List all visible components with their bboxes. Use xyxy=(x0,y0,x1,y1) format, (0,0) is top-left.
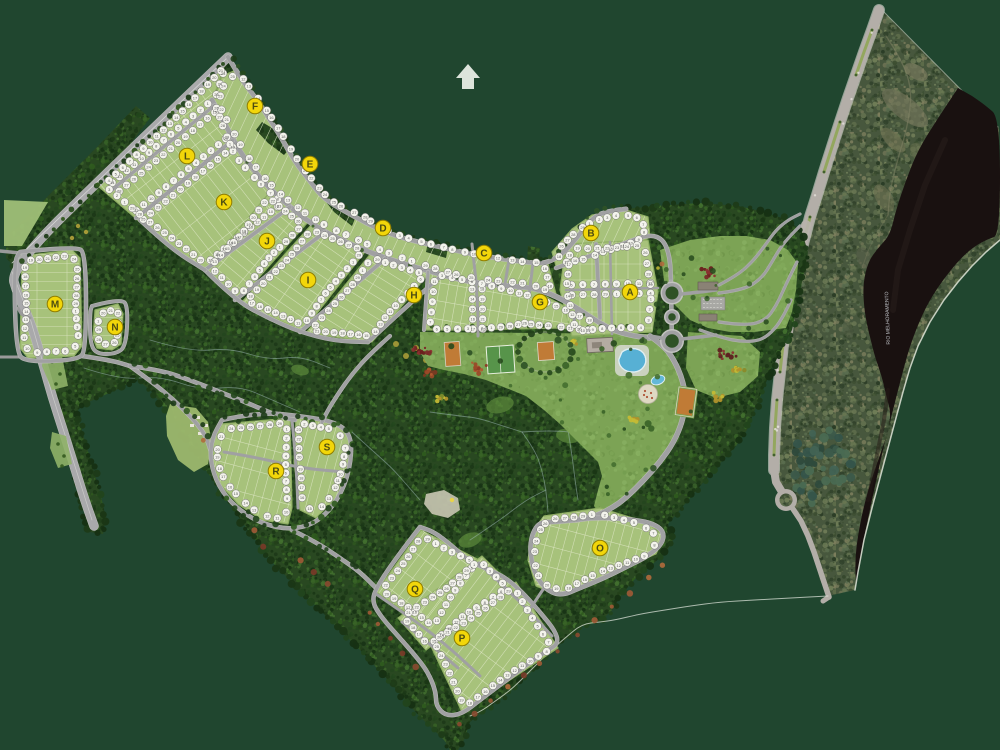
svg-text:28: 28 xyxy=(268,422,273,427)
svg-text:25: 25 xyxy=(290,213,295,218)
svg-text:29: 29 xyxy=(423,263,428,268)
svg-text:24: 24 xyxy=(283,209,288,214)
svg-text:22: 22 xyxy=(54,255,59,260)
svg-text:13: 13 xyxy=(281,313,286,318)
svg-text:23: 23 xyxy=(154,158,159,163)
svg-text:29: 29 xyxy=(130,206,135,211)
svg-text:13: 13 xyxy=(252,507,257,512)
svg-text:26: 26 xyxy=(553,516,558,521)
svg-text:21: 21 xyxy=(520,281,525,286)
svg-text:23: 23 xyxy=(546,323,551,328)
svg-text:J: J xyxy=(264,236,270,247)
svg-text:14: 14 xyxy=(110,180,115,185)
svg-text:23: 23 xyxy=(320,315,325,320)
svg-text:27: 27 xyxy=(446,270,451,275)
svg-text:18: 18 xyxy=(191,128,196,133)
svg-text:26: 26 xyxy=(454,272,459,277)
svg-text:29: 29 xyxy=(499,324,504,329)
svg-text:29: 29 xyxy=(648,282,653,287)
svg-text:25: 25 xyxy=(230,74,235,79)
svg-text:20: 20 xyxy=(198,258,203,263)
svg-text:20: 20 xyxy=(534,284,539,289)
svg-text:21: 21 xyxy=(219,434,224,439)
svg-text:10: 10 xyxy=(581,328,586,333)
svg-text:17: 17 xyxy=(545,275,550,280)
svg-text:20: 20 xyxy=(232,131,237,136)
svg-text:19: 19 xyxy=(289,147,294,152)
svg-text:18: 18 xyxy=(411,625,416,630)
svg-text:27: 27 xyxy=(74,285,79,290)
svg-text:22: 22 xyxy=(219,107,224,112)
svg-text:20: 20 xyxy=(178,187,183,192)
svg-text:28: 28 xyxy=(96,337,101,342)
svg-text:24: 24 xyxy=(439,653,444,658)
svg-text:27: 27 xyxy=(346,242,351,247)
svg-text:12: 12 xyxy=(241,76,246,81)
svg-text:10: 10 xyxy=(338,471,343,476)
svg-text:15: 15 xyxy=(491,683,496,688)
svg-text:14: 14 xyxy=(520,259,525,264)
svg-text:12: 12 xyxy=(616,563,621,568)
svg-text:16: 16 xyxy=(228,484,233,489)
svg-text:24: 24 xyxy=(148,211,153,216)
svg-text:23: 23 xyxy=(423,599,428,604)
svg-text:21: 21 xyxy=(480,316,485,321)
svg-text:28: 28 xyxy=(571,232,576,237)
svg-text:19: 19 xyxy=(332,330,337,335)
svg-text:R: R xyxy=(272,466,280,477)
svg-text:13: 13 xyxy=(510,258,515,263)
svg-text:21: 21 xyxy=(297,446,302,451)
svg-text:25: 25 xyxy=(332,200,337,205)
svg-text:N: N xyxy=(111,322,118,333)
svg-text:Q: Q xyxy=(411,584,419,595)
svg-text:10: 10 xyxy=(139,156,144,161)
svg-text:25: 25 xyxy=(333,301,338,306)
svg-text:20: 20 xyxy=(295,156,300,161)
svg-text:20: 20 xyxy=(251,215,256,220)
svg-text:26: 26 xyxy=(339,204,344,209)
svg-text:17: 17 xyxy=(575,581,580,586)
svg-text:25: 25 xyxy=(529,321,534,326)
svg-text:27: 27 xyxy=(516,322,521,327)
svg-text:10: 10 xyxy=(448,595,453,600)
svg-text:26: 26 xyxy=(444,586,449,591)
svg-text:15: 15 xyxy=(266,307,271,312)
svg-text:14: 14 xyxy=(279,192,284,197)
svg-text:29: 29 xyxy=(581,513,586,518)
svg-text:19: 19 xyxy=(183,134,188,139)
svg-text:25: 25 xyxy=(434,644,439,649)
svg-text:15: 15 xyxy=(419,615,424,620)
svg-text:28: 28 xyxy=(592,292,597,297)
svg-text:23: 23 xyxy=(277,204,282,209)
svg-text:18: 18 xyxy=(247,156,252,161)
svg-text:20: 20 xyxy=(212,75,217,80)
svg-text:17: 17 xyxy=(417,632,422,637)
svg-text:27: 27 xyxy=(581,292,586,297)
svg-text:29: 29 xyxy=(96,327,101,332)
svg-text:23: 23 xyxy=(279,263,284,268)
svg-text:26: 26 xyxy=(569,292,574,297)
svg-text:23: 23 xyxy=(532,549,537,554)
svg-text:20: 20 xyxy=(455,688,460,693)
svg-text:19: 19 xyxy=(29,258,34,263)
svg-text:17: 17 xyxy=(193,95,198,100)
svg-text:17: 17 xyxy=(198,122,203,127)
svg-text:21: 21 xyxy=(45,256,50,261)
svg-text:18: 18 xyxy=(480,286,485,291)
svg-text:D: D xyxy=(379,223,386,234)
svg-text:16: 16 xyxy=(300,495,305,500)
svg-text:27: 27 xyxy=(300,239,305,244)
svg-text:27: 27 xyxy=(296,226,301,231)
svg-text:16: 16 xyxy=(269,115,274,120)
svg-text:13: 13 xyxy=(505,673,510,678)
svg-text:13: 13 xyxy=(327,496,332,501)
svg-text:21: 21 xyxy=(108,308,113,313)
svg-text:25: 25 xyxy=(239,425,244,430)
svg-text:24: 24 xyxy=(625,244,630,249)
svg-text:27: 27 xyxy=(352,210,357,215)
svg-text:14: 14 xyxy=(24,309,29,314)
svg-text:16: 16 xyxy=(483,689,488,694)
svg-text:18: 18 xyxy=(242,229,247,234)
svg-text:19: 19 xyxy=(543,287,548,292)
svg-text:23: 23 xyxy=(218,93,223,98)
svg-text:15: 15 xyxy=(307,506,312,511)
svg-text:29: 29 xyxy=(73,301,78,306)
svg-text:27: 27 xyxy=(563,515,568,520)
svg-text:23: 23 xyxy=(317,185,322,190)
svg-text:22: 22 xyxy=(116,311,121,316)
svg-text:19: 19 xyxy=(206,82,211,87)
svg-text:24: 24 xyxy=(322,233,327,238)
svg-text:I: I xyxy=(307,275,310,286)
svg-text:25: 25 xyxy=(635,243,640,248)
svg-text:10: 10 xyxy=(25,346,30,351)
svg-text:28: 28 xyxy=(137,212,142,217)
svg-text:17: 17 xyxy=(348,331,353,336)
svg-text:10: 10 xyxy=(305,318,310,323)
svg-text:24: 24 xyxy=(285,258,290,263)
svg-text:21: 21 xyxy=(171,193,176,198)
svg-text:12: 12 xyxy=(161,127,166,132)
svg-text:15: 15 xyxy=(364,333,369,338)
svg-text:18: 18 xyxy=(340,331,345,336)
svg-text:10: 10 xyxy=(628,241,633,246)
svg-text:18: 18 xyxy=(468,700,473,705)
svg-text:13: 13 xyxy=(435,618,440,623)
svg-text:14: 14 xyxy=(498,678,503,683)
svg-text:23: 23 xyxy=(443,662,448,667)
svg-text:13: 13 xyxy=(246,84,251,89)
svg-text:10: 10 xyxy=(528,659,533,664)
svg-text:27: 27 xyxy=(491,600,496,605)
svg-text:18: 18 xyxy=(23,274,28,279)
svg-text:28: 28 xyxy=(220,123,225,128)
svg-text:18: 18 xyxy=(548,283,553,288)
svg-text:24: 24 xyxy=(430,595,435,600)
svg-text:19: 19 xyxy=(480,296,485,301)
svg-text:25: 25 xyxy=(139,170,144,175)
svg-text:15: 15 xyxy=(565,281,570,286)
svg-text:M: M xyxy=(51,299,59,310)
svg-text:16: 16 xyxy=(258,304,263,309)
svg-text:13: 13 xyxy=(117,174,122,179)
svg-text:12: 12 xyxy=(383,315,388,320)
svg-text:14: 14 xyxy=(320,504,325,509)
svg-text:K: K xyxy=(220,197,228,208)
svg-text:17: 17 xyxy=(237,234,242,239)
svg-text:28: 28 xyxy=(457,574,462,579)
svg-text:24: 24 xyxy=(170,236,175,241)
svg-text:21: 21 xyxy=(267,275,272,280)
svg-text:27: 27 xyxy=(258,423,263,428)
svg-text:26: 26 xyxy=(155,225,160,230)
svg-text:P: P xyxy=(459,633,466,644)
svg-text:23: 23 xyxy=(315,229,320,234)
svg-text:H: H xyxy=(410,290,417,301)
svg-text:15: 15 xyxy=(225,246,230,251)
svg-text:22: 22 xyxy=(559,324,564,329)
svg-text:12: 12 xyxy=(255,219,260,224)
svg-text:15: 15 xyxy=(590,573,595,578)
svg-text:26: 26 xyxy=(339,294,344,299)
svg-text:16: 16 xyxy=(231,240,236,245)
svg-text:28: 28 xyxy=(355,246,360,251)
svg-text:14: 14 xyxy=(593,253,598,258)
svg-text:17: 17 xyxy=(276,126,281,131)
svg-text:15: 15 xyxy=(234,491,239,496)
svg-text:19: 19 xyxy=(255,287,260,292)
svg-text:18: 18 xyxy=(399,600,404,605)
svg-text:F: F xyxy=(252,101,258,112)
svg-text:22: 22 xyxy=(163,199,168,204)
svg-text:29: 29 xyxy=(357,253,362,258)
svg-text:23: 23 xyxy=(62,254,67,259)
svg-text:25: 25 xyxy=(290,252,295,257)
svg-text:25: 25 xyxy=(162,230,167,235)
svg-text:22: 22 xyxy=(273,269,278,274)
svg-text:13: 13 xyxy=(168,121,173,126)
svg-text:17: 17 xyxy=(299,485,304,490)
svg-text:20: 20 xyxy=(261,281,266,286)
svg-text:10: 10 xyxy=(393,303,398,308)
svg-text:27: 27 xyxy=(217,114,222,119)
svg-text:14: 14 xyxy=(470,297,475,302)
svg-text:13: 13 xyxy=(568,303,573,308)
svg-text:18: 18 xyxy=(248,294,253,299)
svg-text:19: 19 xyxy=(392,596,397,601)
svg-text:17: 17 xyxy=(201,169,206,174)
svg-text:19: 19 xyxy=(186,181,191,186)
svg-text:16: 16 xyxy=(208,163,213,168)
svg-text:20: 20 xyxy=(323,329,328,334)
svg-text:14: 14 xyxy=(373,329,378,334)
svg-text:14: 14 xyxy=(426,620,431,625)
svg-text:16: 16 xyxy=(470,317,475,322)
svg-text:16: 16 xyxy=(413,610,418,615)
svg-text:21: 21 xyxy=(315,329,320,334)
svg-text:19: 19 xyxy=(575,246,580,251)
svg-text:10: 10 xyxy=(226,282,231,287)
svg-text:15: 15 xyxy=(581,257,586,262)
svg-text:27: 27 xyxy=(124,183,129,188)
svg-text:16: 16 xyxy=(566,272,571,277)
svg-text:28: 28 xyxy=(305,232,310,237)
svg-text:24: 24 xyxy=(326,308,331,313)
svg-text:20: 20 xyxy=(101,310,106,315)
svg-text:29: 29 xyxy=(425,536,430,541)
svg-text:21: 21 xyxy=(406,610,411,615)
svg-text:17: 17 xyxy=(254,165,259,170)
svg-text:20: 20 xyxy=(297,455,302,460)
svg-text:13: 13 xyxy=(286,198,291,203)
svg-text:19: 19 xyxy=(298,467,303,472)
svg-text:24: 24 xyxy=(229,426,234,431)
svg-text:18: 18 xyxy=(587,318,592,323)
svg-text:23: 23 xyxy=(296,427,301,432)
svg-text:23: 23 xyxy=(496,278,501,283)
svg-text:27: 27 xyxy=(450,580,455,585)
svg-text:16: 16 xyxy=(573,258,578,263)
svg-text:20: 20 xyxy=(37,257,42,262)
svg-text:24: 24 xyxy=(486,277,491,282)
svg-text:24: 24 xyxy=(469,616,474,621)
svg-text:28: 28 xyxy=(74,293,79,298)
svg-text:28: 28 xyxy=(433,266,438,271)
svg-text:14: 14 xyxy=(243,501,248,506)
svg-text:28: 28 xyxy=(290,233,295,238)
svg-text:E: E xyxy=(307,159,314,170)
svg-text:18: 18 xyxy=(566,586,571,591)
svg-text:10: 10 xyxy=(269,209,274,214)
svg-text:19: 19 xyxy=(459,698,464,703)
svg-text:15: 15 xyxy=(269,183,274,188)
svg-text:29: 29 xyxy=(225,134,230,139)
svg-text:29: 29 xyxy=(464,568,469,573)
svg-text:18: 18 xyxy=(299,475,304,480)
svg-text:27: 27 xyxy=(645,261,650,266)
svg-text:28: 28 xyxy=(572,515,577,520)
svg-text:23: 23 xyxy=(615,245,620,250)
svg-text:22: 22 xyxy=(271,198,276,203)
svg-text:15: 15 xyxy=(432,639,437,644)
svg-text:10: 10 xyxy=(313,217,318,222)
svg-text:13: 13 xyxy=(470,287,475,292)
svg-text:18: 18 xyxy=(199,89,204,94)
svg-text:19: 19 xyxy=(238,142,243,147)
svg-text:14: 14 xyxy=(219,252,224,257)
svg-text:17: 17 xyxy=(577,314,582,319)
svg-text:26: 26 xyxy=(295,245,300,250)
svg-text:24: 24 xyxy=(146,164,151,169)
svg-text:24: 24 xyxy=(395,568,400,573)
svg-text:10: 10 xyxy=(148,140,153,145)
svg-text:22: 22 xyxy=(383,583,388,588)
svg-text:12: 12 xyxy=(570,312,575,317)
svg-text:15: 15 xyxy=(470,307,475,312)
svg-text:14: 14 xyxy=(174,115,179,120)
svg-text:13: 13 xyxy=(608,566,613,571)
svg-text:15: 15 xyxy=(24,301,29,306)
svg-text:19: 19 xyxy=(246,222,251,227)
svg-text:10: 10 xyxy=(467,610,472,615)
svg-text:29: 29 xyxy=(603,292,608,297)
svg-text:27: 27 xyxy=(565,238,570,243)
svg-text:22: 22 xyxy=(296,437,301,442)
svg-text:25: 25 xyxy=(401,561,406,566)
svg-text:20: 20 xyxy=(585,246,590,251)
svg-text:20: 20 xyxy=(480,306,485,311)
svg-text:15: 15 xyxy=(180,108,185,113)
svg-text:12: 12 xyxy=(23,326,28,331)
svg-text:16: 16 xyxy=(263,176,268,181)
svg-text:29: 29 xyxy=(284,239,289,244)
svg-text:28: 28 xyxy=(350,282,355,287)
svg-text:19: 19 xyxy=(23,265,28,270)
svg-text:24: 24 xyxy=(72,257,77,262)
svg-text:16: 16 xyxy=(24,292,29,297)
svg-text:26: 26 xyxy=(522,321,527,326)
svg-text:L: L xyxy=(184,151,190,162)
svg-text:16: 16 xyxy=(356,332,361,337)
svg-text:12: 12 xyxy=(288,317,293,322)
svg-text:12: 12 xyxy=(496,256,501,261)
svg-text:20: 20 xyxy=(437,634,442,639)
svg-text:29: 29 xyxy=(278,421,283,426)
svg-text:25: 25 xyxy=(476,611,481,616)
svg-text:18: 18 xyxy=(557,254,562,259)
svg-text:19: 19 xyxy=(405,619,410,624)
svg-text:22: 22 xyxy=(309,176,314,181)
svg-text:12: 12 xyxy=(296,205,301,210)
svg-text:28: 28 xyxy=(416,539,421,544)
svg-text:12: 12 xyxy=(125,168,130,173)
svg-text:22: 22 xyxy=(313,323,318,328)
svg-text:21: 21 xyxy=(224,117,229,122)
svg-text:27: 27 xyxy=(103,342,108,347)
svg-text:21: 21 xyxy=(451,679,456,684)
svg-text:26: 26 xyxy=(132,177,137,182)
svg-text:26: 26 xyxy=(643,250,648,255)
svg-text:20: 20 xyxy=(545,583,550,588)
svg-text:25: 25 xyxy=(538,527,543,532)
svg-text:28: 28 xyxy=(508,323,513,328)
svg-text:12: 12 xyxy=(265,514,270,519)
svg-text:13: 13 xyxy=(378,322,383,327)
svg-text:16: 16 xyxy=(186,102,191,107)
svg-text:13: 13 xyxy=(212,259,217,264)
svg-text:20: 20 xyxy=(176,140,181,145)
svg-text:26: 26 xyxy=(543,521,548,526)
svg-text:22: 22 xyxy=(262,200,267,205)
svg-text:24: 24 xyxy=(534,538,539,543)
svg-text:S: S xyxy=(324,442,331,453)
svg-text:21: 21 xyxy=(191,252,196,257)
svg-text:16: 16 xyxy=(205,116,210,121)
svg-text:17: 17 xyxy=(471,327,476,332)
svg-text:25: 25 xyxy=(141,217,146,222)
svg-text:20: 20 xyxy=(215,447,220,452)
svg-text:14: 14 xyxy=(601,568,606,573)
svg-text:19: 19 xyxy=(554,586,559,591)
svg-text:24: 24 xyxy=(323,192,328,197)
svg-text:19: 19 xyxy=(586,328,591,333)
svg-text:O: O xyxy=(596,543,604,554)
svg-text:28: 28 xyxy=(646,271,651,276)
